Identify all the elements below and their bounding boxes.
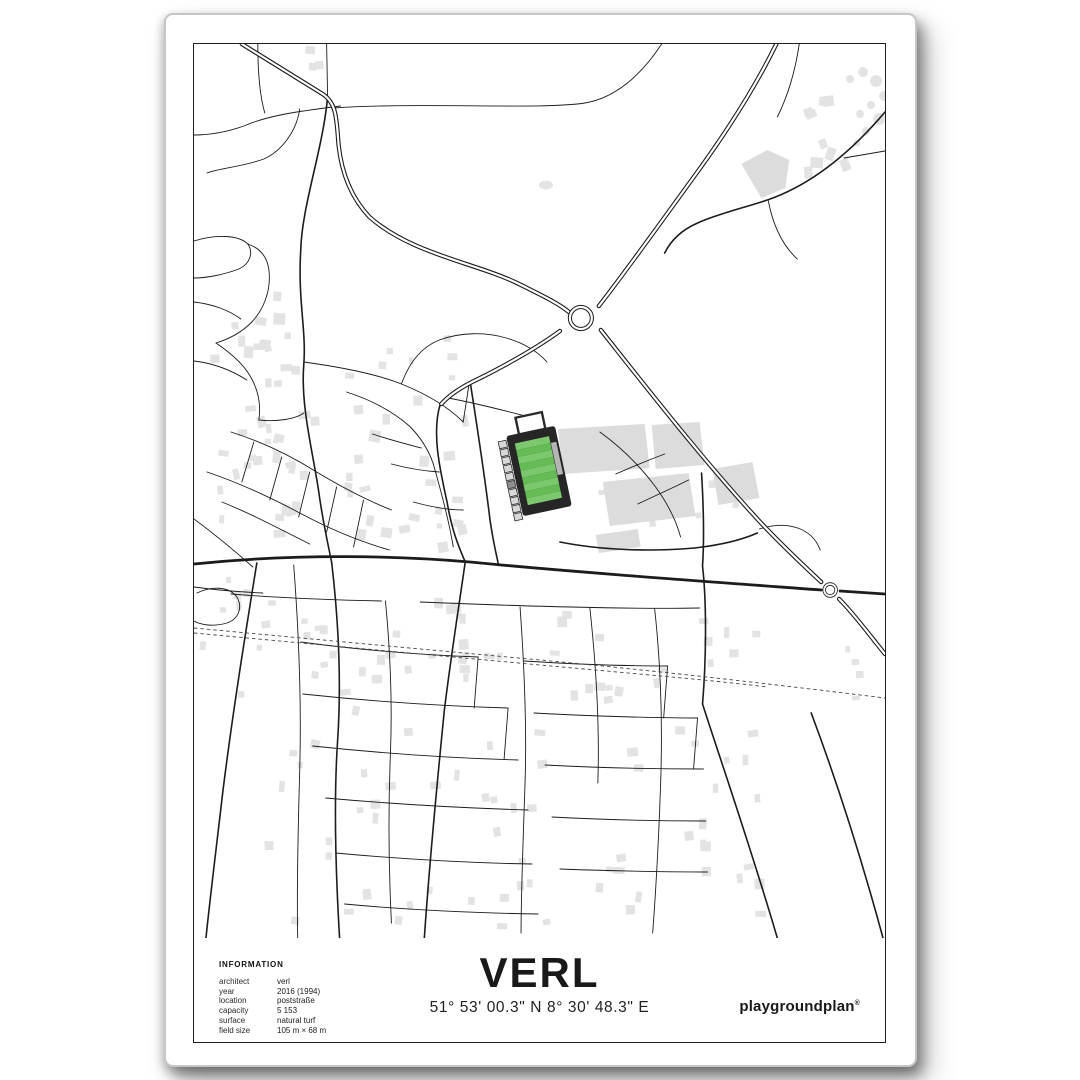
registered-trademark-icon: ® [855, 1000, 860, 1007]
poster-title: VERL [194, 952, 885, 994]
info-row: field size 105 m × 68 m [219, 1026, 326, 1036]
map-highway [242, 44, 885, 654]
brand-logo: playgroundplan® [739, 998, 860, 1015]
caption-area: INFORMATION architect verl year 2016 (19… [194, 938, 885, 1042]
brand-name: playgroundplan [739, 998, 854, 1015]
stadium-map [194, 44, 885, 938]
page-background: INFORMATION architect verl year 2016 (19… [0, 0, 1080, 1080]
poster-frame: INFORMATION architect verl year 2016 (19… [164, 13, 917, 1067]
map-railway [194, 628, 885, 698]
info-row: surface natural turf [219, 1016, 326, 1026]
map-roads-main [194, 557, 885, 594]
stadium [494, 410, 572, 521]
poster-inner-border: INFORMATION architect verl year 2016 (19… [193, 43, 886, 1043]
